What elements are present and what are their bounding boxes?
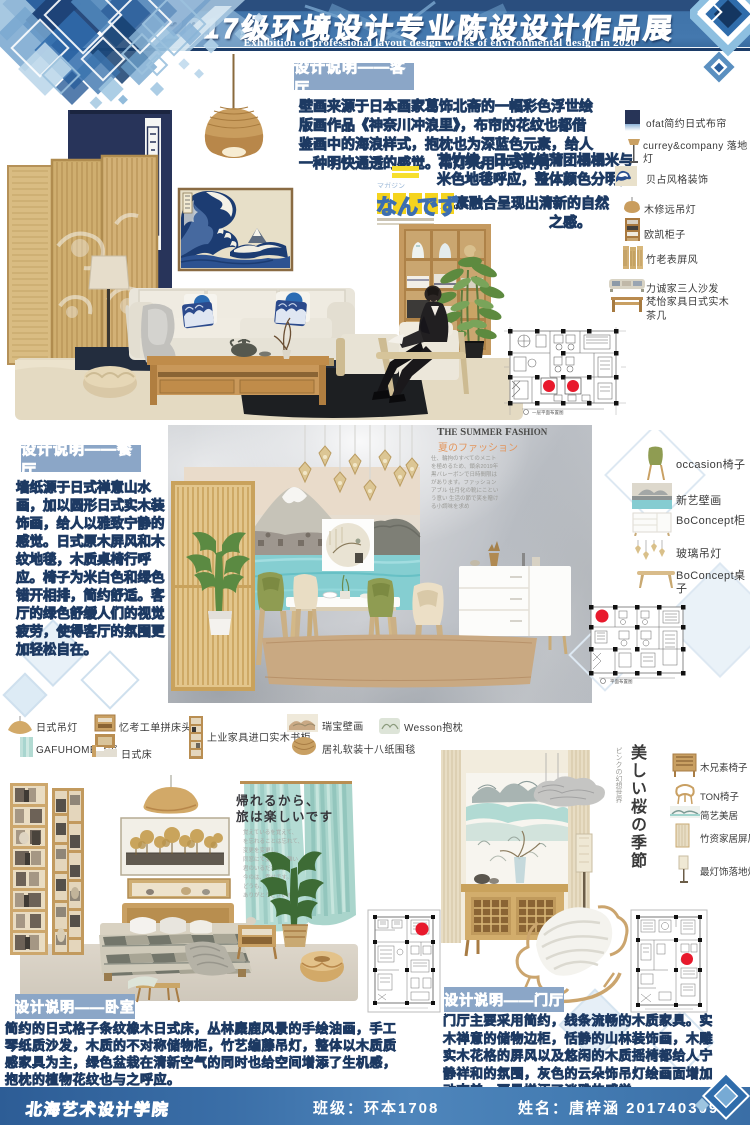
svg-text:旅は楽しいです: 旅は楽しいです bbox=[235, 809, 334, 824]
svg-text:平面布置图: 平面布置图 bbox=[610, 678, 633, 684]
svg-text:帰れるから、: 帰れるから、 bbox=[236, 793, 320, 808]
svg-text:を忘れることは忘れて、: を忘れることは忘れて、 bbox=[243, 837, 303, 845]
svg-text:どうも、: どうも、 bbox=[243, 882, 265, 890]
svg-text:覚えているを覚えて、: 覚えているを覚えて、 bbox=[243, 828, 297, 836]
svg-text:一层平面布置图: 一层平面布置图 bbox=[532, 409, 564, 416]
